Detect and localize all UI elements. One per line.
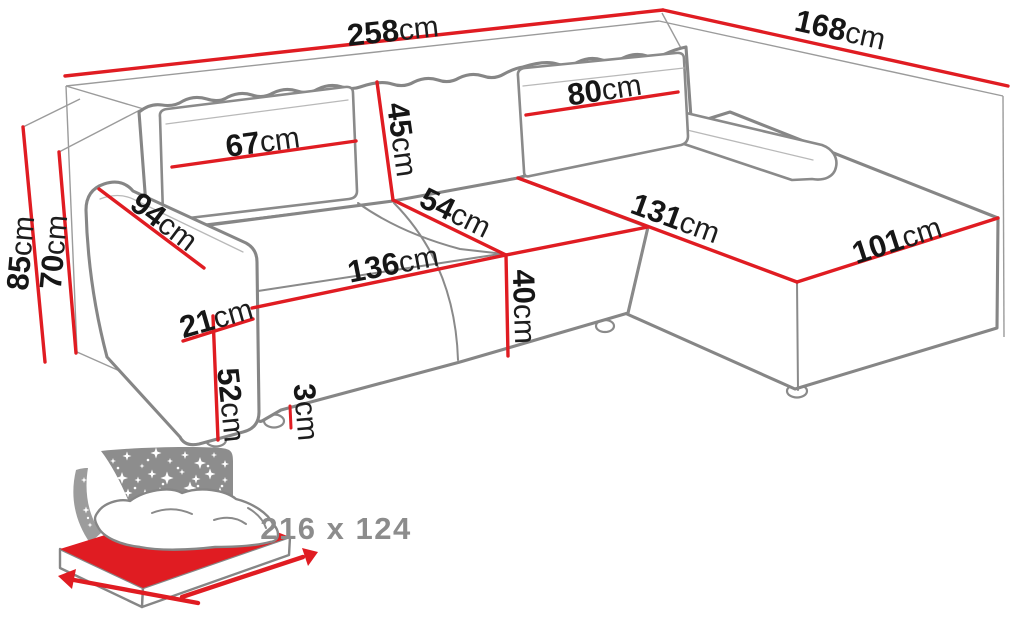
star-dot	[147, 459, 150, 462]
star-dot	[177, 467, 180, 470]
star-icon	[104, 470, 112, 478]
star-dot	[117, 467, 120, 470]
star-dot	[162, 483, 165, 486]
sofa-dimension-diagram: 258cm 168cm 85cm 70cm 67cm 45cm 80cm 94c…	[0, 0, 1020, 618]
star-dot	[134, 487, 137, 490]
sleeping-area-label: 216 x 124	[260, 511, 411, 546]
star-dot	[197, 485, 200, 488]
bed-duvet	[95, 489, 278, 549]
dimension-label-seat-height: 40cm	[506, 269, 544, 345]
guide-box-right-vertical	[1003, 96, 1004, 337]
night-sky-back-swoosh	[73, 468, 101, 543]
dimension-label-leg-height: 3cm	[287, 382, 327, 442]
star-dot	[87, 517, 89, 519]
guide-box-back-corner	[662, 13, 682, 50]
star-dot	[221, 485, 224, 488]
guide-extension-70	[59, 110, 140, 152]
sleeping-function-icon: 216 x 124	[58, 447, 412, 607]
star-icon	[110, 490, 115, 495]
star-dot	[207, 465, 210, 468]
diagram-canvas: 258cm 168cm 85cm 70cm 67cm 45cm 80cm 94c…	[0, 0, 1020, 618]
guide-box-left-corner	[66, 86, 147, 110]
guide-extension-85	[23, 99, 80, 127]
chaise-corner-seam	[797, 282, 798, 390]
